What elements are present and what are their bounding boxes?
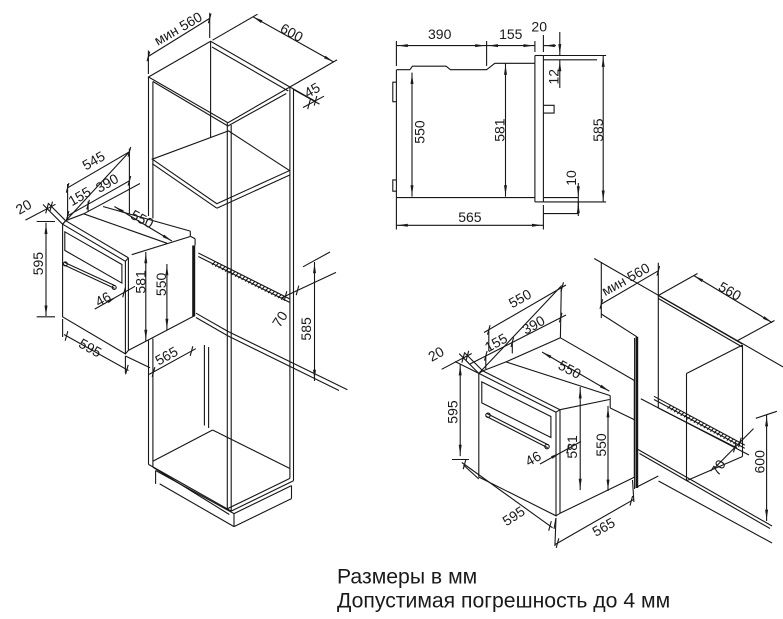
svg-text:70: 70	[707, 456, 729, 478]
svg-text:600: 600	[278, 20, 306, 45]
svg-text:550: 550	[153, 273, 169, 297]
svg-text:565: 565	[458, 209, 482, 225]
svg-text:20: 20	[531, 18, 547, 34]
svg-text:550: 550	[128, 206, 156, 231]
svg-text:46: 46	[522, 448, 544, 470]
svg-text:550: 550	[593, 433, 609, 457]
svg-text:600: 600	[752, 450, 768, 474]
svg-text:585: 585	[590, 118, 606, 142]
svg-text:560: 560	[716, 278, 744, 304]
svg-text:мин 560: мин 560	[151, 8, 205, 48]
svg-text:45: 45	[301, 79, 323, 101]
svg-text:12: 12	[545, 69, 561, 85]
svg-text:595: 595	[30, 252, 46, 276]
svg-text:155: 155	[482, 330, 510, 355]
svg-text:565: 565	[589, 514, 617, 539]
svg-text:565: 565	[152, 343, 180, 368]
svg-text:10: 10	[563, 170, 579, 186]
svg-text:Допустимая погрешность до 4 мм: Допустимая погрешность до 4 мм	[337, 590, 670, 613]
svg-text:Размеры в мм: Размеры в мм	[337, 566, 477, 589]
svg-text:390: 390	[93, 170, 121, 196]
svg-text:550: 550	[556, 357, 584, 382]
svg-text:550: 550	[506, 286, 534, 311]
svg-text:585: 585	[298, 317, 314, 341]
svg-text:155: 155	[499, 26, 523, 42]
svg-text:545: 545	[79, 148, 107, 174]
svg-text:390: 390	[428, 26, 452, 42]
svg-text:70: 70	[269, 308, 291, 330]
svg-text:46: 46	[92, 288, 114, 310]
svg-text:581: 581	[132, 270, 148, 294]
svg-text:20: 20	[13, 196, 35, 218]
svg-text:20: 20	[425, 343, 447, 365]
svg-text:595: 595	[445, 400, 461, 424]
svg-text:390: 390	[519, 312, 547, 337]
svg-text:550: 550	[412, 120, 428, 144]
svg-text:581: 581	[491, 118, 507, 142]
